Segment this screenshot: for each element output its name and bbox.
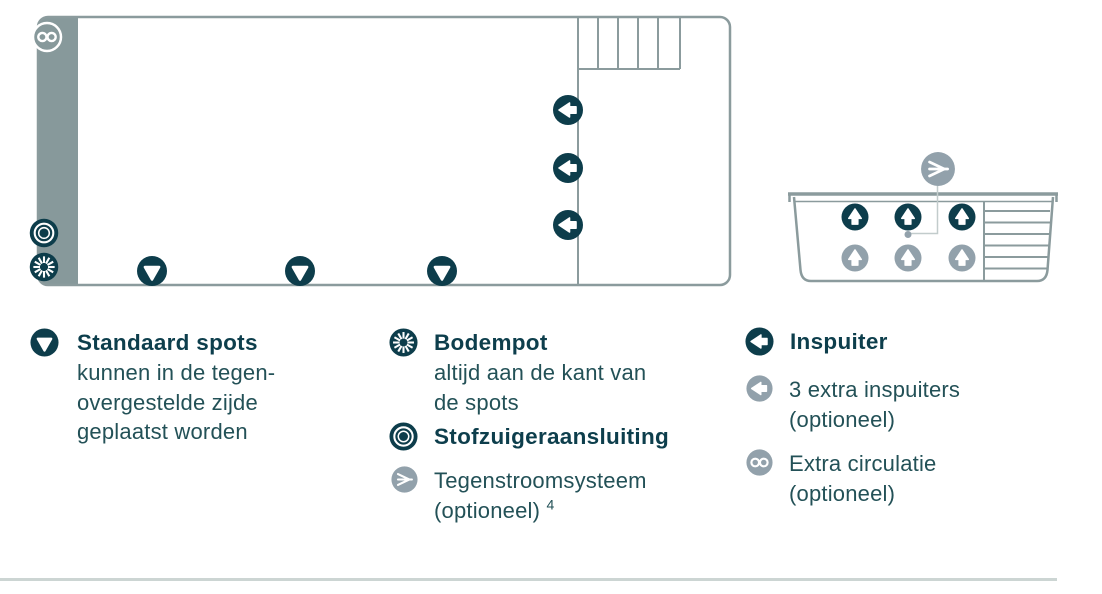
extra-inspuiter-up-icon: [949, 245, 976, 272]
legend-item-stofzuigeraansluiting: Stofzuigeraansluiting: [389, 422, 669, 452]
legend-item-inspuiter: Inspuiter: [745, 327, 888, 357]
legend-item-bodempot: Bodempot altijd aan de kant van de spots: [389, 328, 646, 417]
legend-title: Standaard spots: [77, 328, 275, 358]
legend-title: Bodempot: [434, 328, 646, 358]
legend-line: geplaatst worden: [77, 417, 275, 447]
legend-title: Stofzuigeraansluiting: [434, 422, 669, 452]
standard-spot-icon: [30, 328, 59, 357]
extra-circulatie-icon: [746, 449, 773, 476]
legend-title: Inspuiter: [790, 327, 888, 357]
extra-inspuiter-up-icon: [842, 245, 869, 272]
extra-inspuiter-icon: [746, 375, 773, 402]
inspuiter-up-icon: [842, 204, 869, 231]
inspuiter-up-icon: [949, 204, 976, 231]
legend-text-bodempot: Bodempot altijd aan de kant van de spots: [434, 328, 646, 417]
standard-spot-icon: [137, 256, 167, 286]
inspuiter-icon: [553, 153, 583, 183]
tegenstroom-icon: [391, 466, 418, 493]
extra-inspuiter-up-icon: [895, 245, 922, 272]
standard-spot-icon: [285, 256, 315, 286]
legend-text-stofzuigeraansluiting: Stofzuigeraansluiting: [434, 422, 669, 452]
legend-line: overgestelde zijde: [77, 388, 275, 418]
pool-diagram: [0, 0, 1102, 312]
pool-configuration-figure: Standaard spots kunnen in de tegen- over…: [0, 0, 1102, 594]
ladder-steps: [984, 202, 1050, 282]
legend-line: kunnen in de tegen-: [77, 358, 275, 388]
legend-item-extra-circulatie: Extra circulatie (optioneel): [746, 449, 936, 508]
legend-line: (optioneel) 4: [434, 496, 647, 526]
inspuiter-icon: [553, 95, 583, 125]
legend-line: (optioneel): [789, 405, 960, 435]
legend-text-extra-inspuiters: 3 extra inspuiters (optioneel): [789, 375, 960, 434]
tegenstroom-icon: [921, 152, 955, 186]
pool-cross-section: [788, 152, 1058, 281]
legend-line-text: (optioneel): [434, 498, 540, 523]
legend-line: altijd aan de kant van: [434, 358, 646, 388]
stofzuigeraansluiting-icon: [389, 422, 418, 451]
legend-text-inspuiter: Inspuiter: [790, 327, 888, 357]
extra-circulatie-icon: [33, 23, 61, 51]
footnote-marker: 4: [546, 496, 554, 512]
bottom-divider: [0, 578, 1057, 581]
legend-line: Tegenstroomsysteem: [434, 466, 647, 496]
inspuiter-icon: [745, 327, 774, 356]
legend-line: 3 extra inspuiters: [789, 375, 960, 405]
stofzuigeraansluiting-icon: [30, 219, 59, 248]
legend-text-tegenstroomsysteem: Tegenstroomsysteem (optioneel) 4: [434, 466, 647, 525]
legend-item-standaard-spots: Standaard spots kunnen in de tegen- over…: [30, 328, 275, 447]
tegenstroom-connector-dot: [905, 231, 912, 238]
pool-outline: [38, 17, 730, 285]
legend-item-tegenstroomsysteem: Tegenstroomsysteem (optioneel) 4: [391, 466, 647, 525]
stairs: [578, 18, 680, 69]
legend-line: (optioneel): [789, 479, 936, 509]
legend-text-extra-circulatie: Extra circulatie (optioneel): [789, 449, 936, 508]
legend-line: de spots: [434, 388, 646, 418]
standard-spot-icon: [427, 256, 457, 286]
legend-item-extra-inspuiters: 3 extra inspuiters (optioneel): [746, 375, 960, 434]
bodempot-icon: [30, 253, 59, 282]
pool-top-view: [30, 17, 730, 286]
bodempot-icon: [389, 328, 418, 357]
inspuiter-icon: [553, 210, 583, 240]
inspuiter-up-icon: [895, 204, 922, 231]
legend-line: Extra circulatie: [789, 449, 936, 479]
legend-text-standaard-spots: Standaard spots kunnen in de tegen- over…: [77, 328, 275, 447]
